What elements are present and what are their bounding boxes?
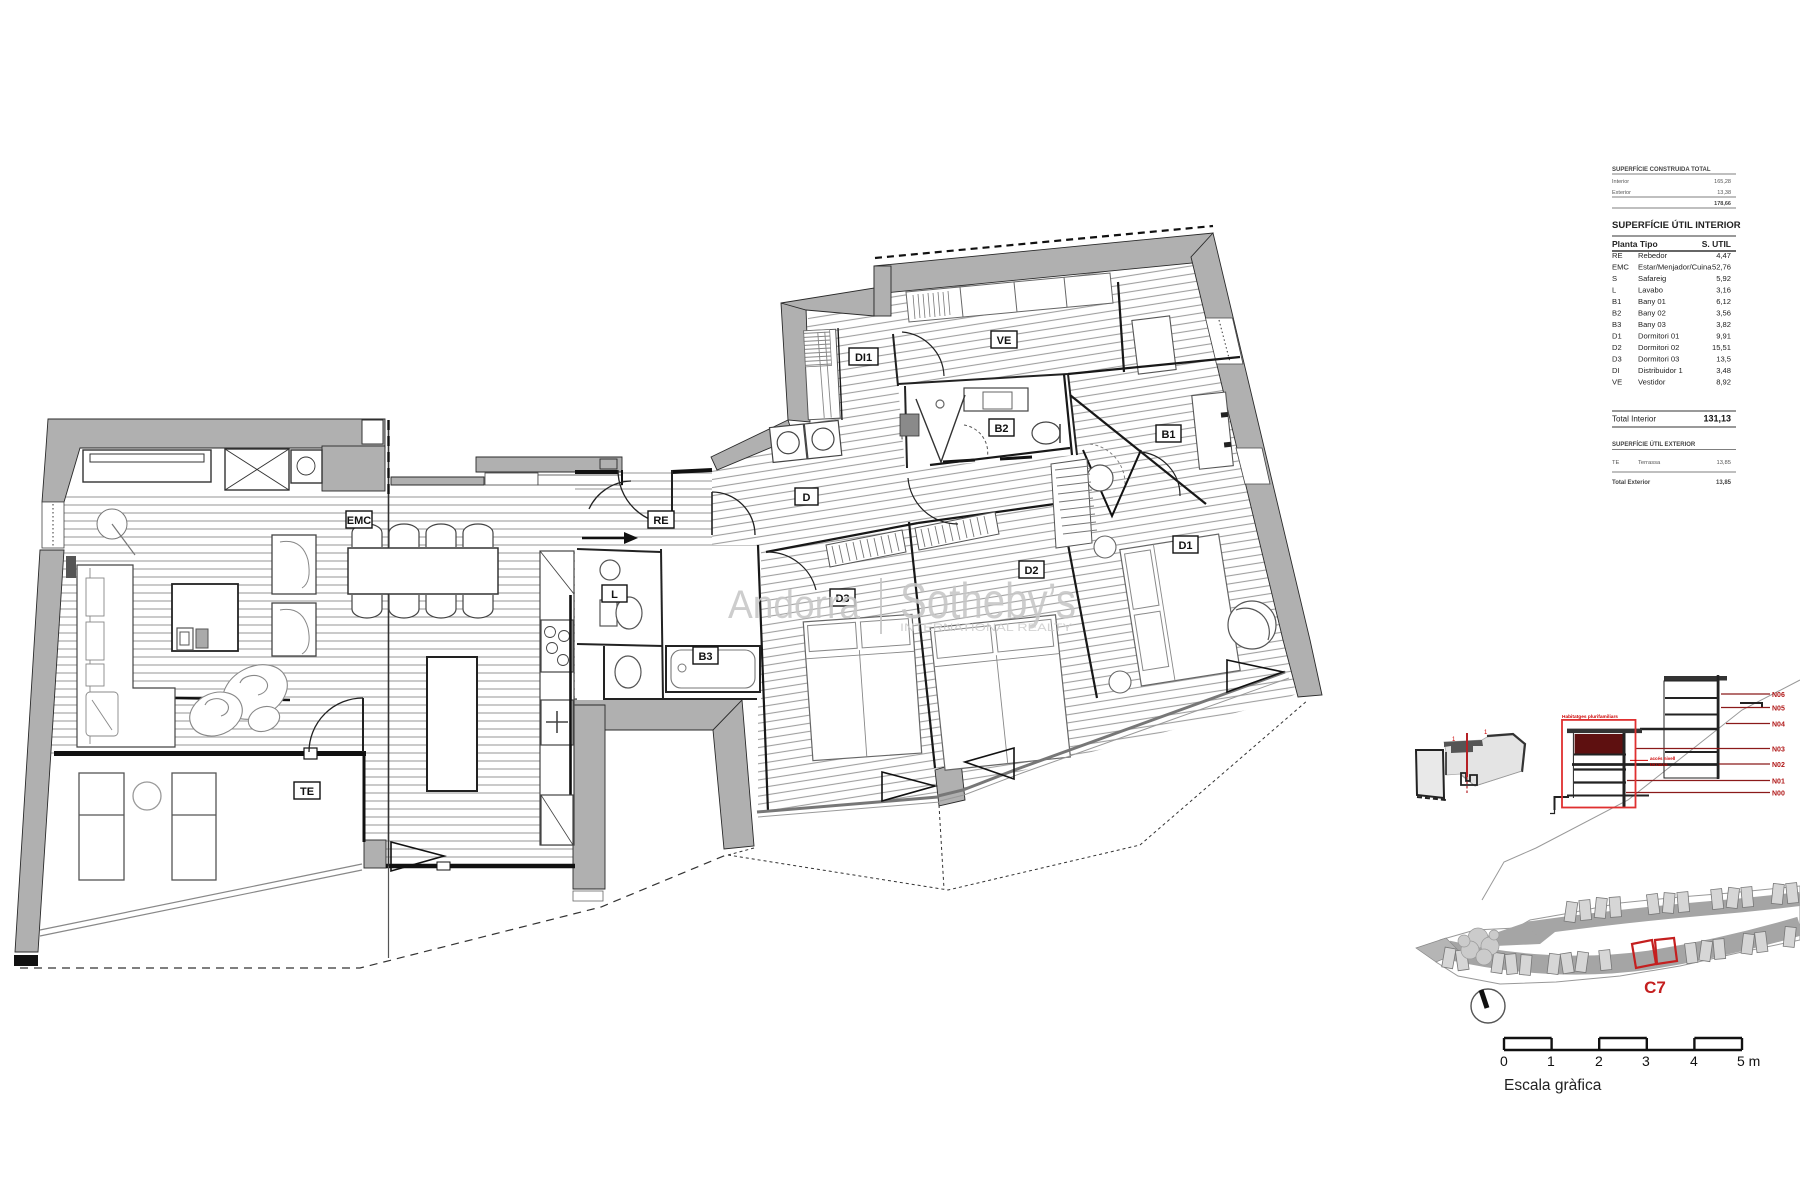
svg-text:8,92: 8,92 <box>1716 378 1731 387</box>
svg-text:4,47: 4,47 <box>1716 251 1731 260</box>
svg-text:TE: TE <box>1612 460 1620 466</box>
svg-text:N05: N05 <box>1772 706 1785 713</box>
svg-text:D1: D1 <box>1612 332 1622 341</box>
svg-text:terrassa: terrassa <box>1650 762 1668 767</box>
svg-text:Dormitori 03: Dormitori 03 <box>1638 355 1679 364</box>
svg-text:5,92: 5,92 <box>1716 274 1731 283</box>
svg-text:N00: N00 <box>1772 791 1785 798</box>
svg-text:Estar/Menjador/Cuina: Estar/Menjador/Cuina <box>1638 263 1712 272</box>
svg-text:accés nivell: accés nivell <box>1650 756 1675 761</box>
svg-text:0: 0 <box>1500 1053 1508 1069</box>
svg-text:B2: B2 <box>1612 309 1621 318</box>
svg-text:Bany 01: Bany 01 <box>1638 297 1666 306</box>
svg-text:3,16: 3,16 <box>1716 286 1731 295</box>
svg-text:Habitatges plurifamiliars: Habitatges plurifamiliars <box>1562 714 1618 720</box>
svg-text:DI: DI <box>1612 366 1620 375</box>
svg-text:RE: RE <box>653 515 668 527</box>
svg-text:EMC: EMC <box>347 515 372 527</box>
svg-text:Escala gràfica: Escala gràfica <box>1504 1077 1602 1094</box>
svg-text:B1: B1 <box>1161 429 1175 441</box>
svg-text:L: L <box>1612 286 1616 295</box>
svg-text:13,85: 13,85 <box>1716 460 1731 466</box>
svg-text:N03: N03 <box>1772 747 1785 754</box>
svg-text:B3: B3 <box>698 651 712 663</box>
svg-text:1: 1 <box>1547 1053 1555 1069</box>
svg-text:13,85: 13,85 <box>1716 480 1732 486</box>
svg-text:Bany 02: Bany 02 <box>1638 309 1666 318</box>
svg-text:3,82: 3,82 <box>1716 320 1731 329</box>
svg-text:B2: B2 <box>994 423 1008 435</box>
svg-text:D: D <box>803 492 811 504</box>
svg-text:S: S <box>1612 274 1617 283</box>
svg-text:TE: TE <box>300 786 314 798</box>
svg-text:Total Interior: Total Interior <box>1612 415 1656 424</box>
svg-text:6,12: 6,12 <box>1716 297 1731 306</box>
svg-text:15,51: 15,51 <box>1712 343 1731 352</box>
svg-text:DI1: DI1 <box>855 352 872 364</box>
svg-text:C7: C7 <box>1644 978 1666 997</box>
svg-text:SUPERFÍCIE CONSTRUIDA TOTAL: SUPERFÍCIE CONSTRUIDA TOTAL <box>1612 165 1711 173</box>
svg-text:Sotheby’s: Sotheby’s <box>900 573 1076 629</box>
svg-text:9,91: 9,91 <box>1716 332 1731 341</box>
svg-text:D2: D2 <box>1612 343 1622 352</box>
svg-text:Andorra: Andorra <box>728 583 861 627</box>
svg-text:Exterior: Exterior <box>1612 190 1631 196</box>
svg-text:EMC: EMC <box>1612 263 1629 272</box>
svg-text:D3: D3 <box>1612 355 1622 364</box>
svg-text:178,66: 178,66 <box>1714 201 1731 207</box>
svg-text:Safareig: Safareig <box>1638 274 1666 283</box>
svg-text:VE: VE <box>1612 378 1622 387</box>
svg-text:13,38: 13,38 <box>1717 190 1731 196</box>
svg-text:N02: N02 <box>1772 762 1785 769</box>
svg-text:5 m: 5 m <box>1737 1053 1760 1069</box>
svg-text:N06: N06 <box>1772 692 1785 699</box>
svg-text:SUPERFÍCIE ÚTIL EXTERIOR: SUPERFÍCIE ÚTIL EXTERIOR <box>1612 440 1696 448</box>
svg-text:L: L <box>611 589 618 601</box>
svg-text:Rebedor: Rebedor <box>1638 251 1668 260</box>
svg-text:VE: VE <box>997 335 1012 347</box>
svg-text:Dormitori 01: Dormitori 01 <box>1638 332 1679 341</box>
svg-text:Terrassa: Terrassa <box>1638 460 1661 466</box>
svg-text:Bany 03: Bany 03 <box>1638 320 1666 329</box>
svg-text:RE: RE <box>1612 251 1623 260</box>
svg-text:13,5: 13,5 <box>1716 355 1731 364</box>
svg-text:D1: D1 <box>1178 540 1192 552</box>
svg-text:3: 3 <box>1642 1053 1650 1069</box>
svg-text:2: 2 <box>1595 1053 1603 1069</box>
svg-text:Lavabo: Lavabo <box>1638 286 1663 295</box>
svg-text:3,48: 3,48 <box>1716 366 1731 375</box>
svg-text:INTERNATIONAL REALTY: INTERNATIONAL REALTY <box>900 622 1073 634</box>
svg-text:4: 4 <box>1690 1053 1698 1069</box>
svg-text:Planta Tipo: Planta Tipo <box>1612 239 1658 249</box>
svg-text:Dormitori 02: Dormitori 02 <box>1638 343 1679 352</box>
svg-text:B1: B1 <box>1612 297 1621 306</box>
svg-text:Vestidor: Vestidor <box>1638 378 1666 387</box>
svg-text:S. UTIL: S. UTIL <box>1702 239 1731 249</box>
svg-text:N01: N01 <box>1772 779 1785 786</box>
svg-text:3,56: 3,56 <box>1716 309 1731 318</box>
svg-text:SUPERFÍCIE ÚTIL INTERIOR: SUPERFÍCIE ÚTIL INTERIOR <box>1612 219 1741 231</box>
svg-text:N04: N04 <box>1772 722 1785 729</box>
svg-text:52,76: 52,76 <box>1712 263 1731 272</box>
svg-text:165,28: 165,28 <box>1714 179 1731 185</box>
svg-text:Distribuidor 1: Distribuidor 1 <box>1638 366 1683 375</box>
svg-text:Interior: Interior <box>1612 179 1629 185</box>
svg-text:Total Exterior: Total Exterior <box>1612 480 1651 486</box>
svg-text:B3: B3 <box>1612 320 1621 329</box>
svg-text:131,13: 131,13 <box>1703 414 1731 424</box>
